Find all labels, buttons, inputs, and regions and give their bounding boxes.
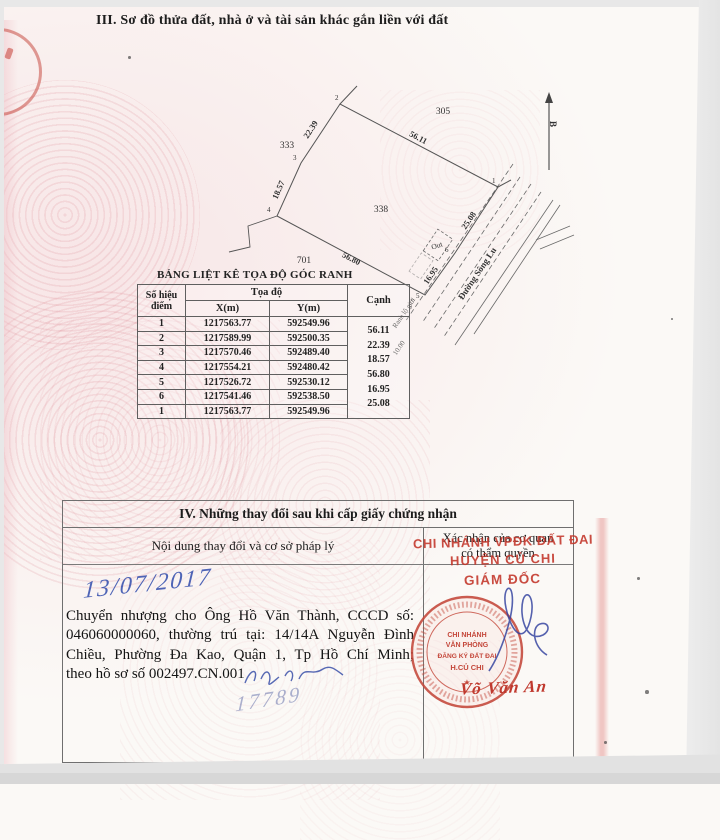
edge-length: 16.95 [421,265,440,286]
edge-length: 22.39 [301,119,320,140]
pink-margin-line [595,518,609,762]
signature-ink [481,581,563,679]
coord-x: 1217554.21 [186,360,270,375]
edge-values-cell: 56.11 22.39 18.57 56.80 16.95 25.08 [348,317,410,419]
coordinate-table-section: BẢNG LIỆT KÊ TỌA ĐỘ GÓC RANH Số hiệu điể… [137,269,410,419]
coord-y: 592480.42 [270,360,348,375]
photo-edge-top [0,0,720,7]
vertex-label: 6 [445,246,449,254]
road-edge-line [455,200,553,345]
vertex-label: 4 [267,206,271,214]
dust-speck [671,318,673,320]
edge-value: 56.11 [348,324,409,338]
seal-line: CHI NHÁNH [447,630,486,639]
vertex-label: 2 [335,94,339,102]
photo-edge-right [686,0,720,784]
point-id: 6 [138,389,186,404]
edge-length: 25.08 [459,210,478,231]
road-dashed-line [422,177,520,323]
edge-length: 56.80 [341,249,363,267]
neighbor-plot-number: 701 [297,256,312,266]
north-arrow-head [545,92,553,103]
red-ink-mark [4,47,13,59]
edge-value: 18.57 [348,353,409,367]
transfer-note-line: Chuyển nhượng cho Ông Hồ Văn Thành, CCCD… [66,607,414,626]
coordinate-table-title: BẢNG LIỆT KÊ TỌA ĐỘ GÓC RANH [157,269,410,281]
vertex-label: 1 [492,177,496,185]
point-id: 3 [138,346,186,361]
coord-x: 1217589.99 [186,331,270,346]
section3-title: III. Sơ đồ thửa đất, nhà ở và tài sản kh… [96,13,448,29]
point-id: 4 [138,360,186,375]
col-header-coords: Tọa độ [186,285,348,301]
coord-x: 1217563.77 [186,404,270,419]
outbuilding-label: Out [430,239,444,251]
road-edge-line [474,205,560,334]
col-header-content: Nội dung thay đổi và cơ sở pháp lý [63,527,423,564]
handwritten-date: 13/07/2017 [82,564,213,605]
page-left-pink-edge [0,20,18,764]
coord-y: 592549.96 [270,404,348,419]
outbuilding-box [409,253,433,279]
transfer-note-line: Chiều, Phường Đa Kao, Quận 1, Tp Hồ Chí … [66,646,414,665]
photo-edge-left [0,0,4,784]
coordinate-table: Số hiệu điểm Tọa độ Cạnh X(m) Y(m) 1 121… [137,284,410,419]
coord-y: 592549.96 [270,317,348,332]
coord-x: 1217541.46 [186,389,270,404]
seal-line: VĂN PHÒNG [446,640,489,649]
transfer-note-line: theo hồ sơ số 002497.CN.001 [66,665,414,684]
stamp-text-director: GIÁM ĐỐC [415,570,590,590]
point-id: 1 [138,404,186,419]
road-dashed-line [433,184,531,330]
col-header-point: Số hiệu điểm [138,285,186,317]
edge-value: 16.95 [348,383,409,397]
handwritten-file-number: 17789 [235,681,303,717]
signer-name: Võ Văn An [450,676,558,700]
dust-speck [128,56,131,59]
vertex-label: 3 [293,154,297,162]
coord-x: 1217526.72 [186,375,270,390]
table-row: 1 1217563.77 592549.96 56.11 22.39 18.57… [138,317,410,332]
coord-y: 592530.12 [270,375,348,390]
parcel-boundary [277,104,498,295]
point-id: 1 [138,317,186,332]
point-id: 2 [138,331,186,346]
edge-length: 18.57 [270,178,287,200]
col-header-x: X(m) [186,301,270,317]
point-id: 5 [138,375,186,390]
outbuilding-box [423,229,452,261]
road-dashed-line [443,192,541,338]
boundary-extension [498,180,511,187]
edge-length: 56.11 [408,129,429,147]
neighbor-plot-number: 333 [280,141,295,151]
section4-title: IV. Những thay đổi sau khi cấp giấy chứn… [63,501,573,528]
coord-y: 592489.40 [270,346,348,361]
coord-y: 592538.50 [270,389,348,404]
north-label: B [548,121,558,127]
seal-line: ĐĂNG KÝ ĐẤT ĐAI [438,650,497,660]
road-branch-line [540,235,574,249]
neighbor-boundary-step [229,216,277,252]
watermark-rosette [380,90,540,250]
section4-table: IV. Những thay đổi sau khi cấp giấy chứn… [62,500,574,763]
road-branch-line [536,226,570,240]
dust-speck [645,690,649,694]
seal-line: H.CỦ CHI [450,663,483,672]
transfer-note-line: 046060000060, thường trú tại: 14/14A Ngu… [66,626,414,645]
partial-red-stamp-arc [0,28,42,116]
road-name: Đường Sông Lu [456,245,498,301]
coord-x: 1217563.77 [186,317,270,332]
photo-edge-bottom-dark [0,773,720,784]
neighbor-plot-number: 305 [436,107,451,117]
edge-value: 56.80 [348,368,409,382]
col-header-edge: Cạnh [348,285,410,317]
plot-number: 338 [374,205,389,215]
corridor-boundary-line [405,164,513,322]
edge-value: 22.39 [348,339,409,353]
coord-x: 1217570.46 [186,346,270,361]
vertex-label: 5 [416,292,420,300]
dust-speck [604,741,607,744]
boundary-extension [340,86,357,104]
col-header-y: Y(m) [270,301,348,317]
edge-value: 25.08 [348,397,409,411]
dust-speck [637,577,640,580]
transfer-note: Chuyển nhượng cho Ông Hồ Văn Thành, CCCD… [66,607,414,684]
coord-y: 592500.35 [270,331,348,346]
